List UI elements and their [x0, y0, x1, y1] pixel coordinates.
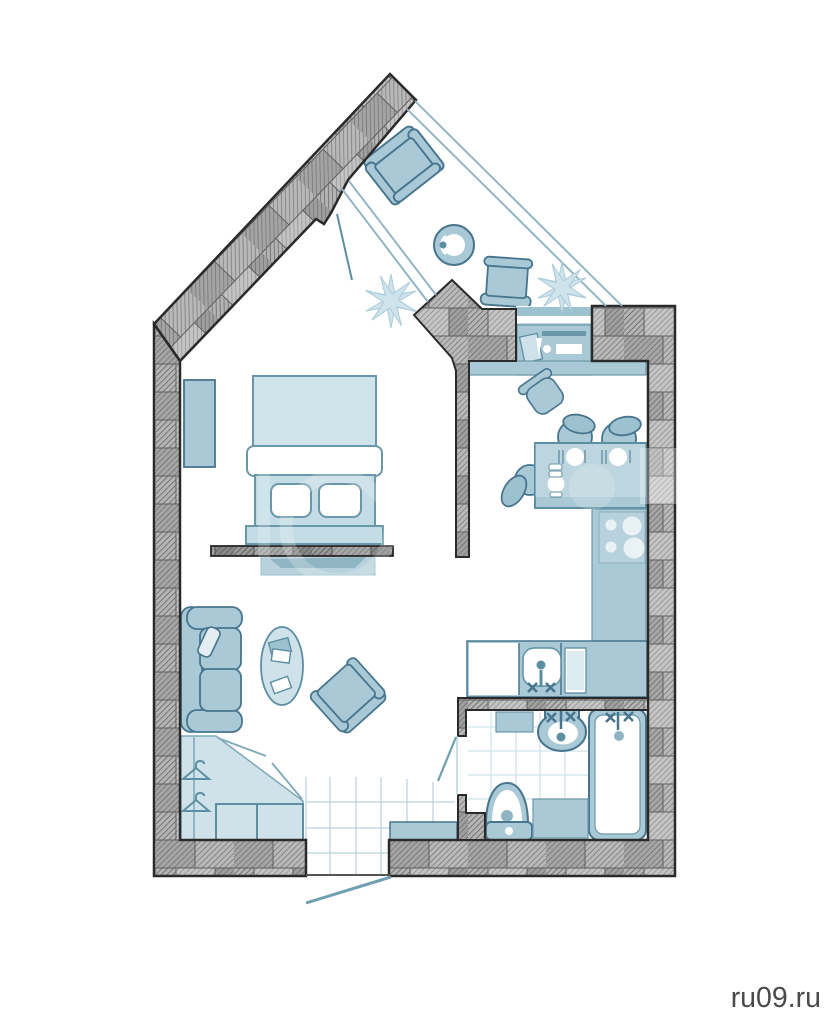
svg-text:ru09.ru: ru09.ru	[731, 982, 821, 1014]
